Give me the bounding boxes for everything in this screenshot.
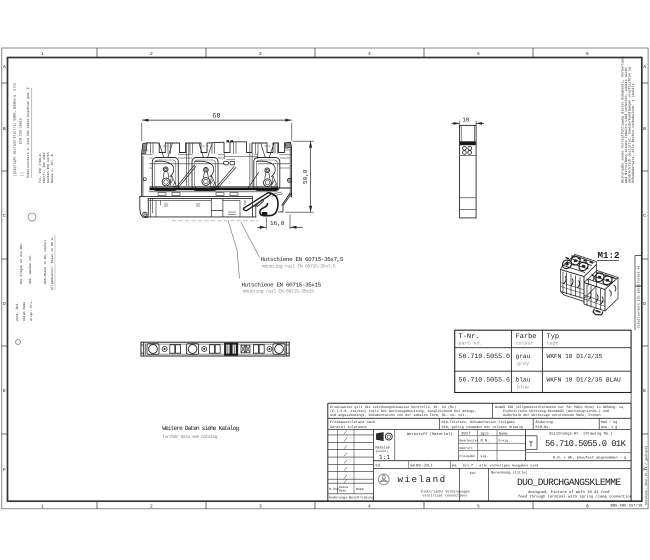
- svg-text:Datum: Datum: [339, 486, 348, 489]
- svg-text:grau: grau: [516, 353, 531, 360]
- svg-text:2017: 2017: [461, 431, 471, 436]
- svg-text:Hutschiene EN 60715-35x15: Hutschiene EN 60715-35x15: [242, 282, 322, 289]
- svg-text:Bei Fragen an die Abt.: Bei Fragen an die Abt.: [19, 242, 23, 284]
- svg-text:ea: ea: [452, 464, 457, 469]
- svg-text:Weitere Daten siehe Katalog: Weitere Daten siehe Katalog: [162, 425, 239, 432]
- svg-text:F: F: [3, 467, 6, 473]
- svg-text:56.710.5055.6: 56.710.5055.6: [459, 377, 510, 384]
- svg-text:T: T: [529, 441, 534, 449]
- svg-text:3: 3: [259, 504, 262, 510]
- svg-text:ECR-No.: ECR-No.: [536, 425, 551, 430]
- svg-text:Benennung (title): Benennung (title): [491, 470, 528, 475]
- svg-text:2: 2: [150, 504, 153, 510]
- svg-text:B05-X05-157/18: B05-X05-157/18: [611, 504, 644, 509]
- svg-text:DIN-Toleranz, Dokumentation Fr: DIN-Toleranz, Dokumentation Freigabe: [442, 420, 515, 425]
- svg-text:1: 1: [41, 51, 44, 57]
- svg-text:type: type: [547, 340, 559, 346]
- svg-text:N.N.: N.N.: [481, 438, 490, 443]
- svg-text:feed through terminal with spr: feed through terminal with spring clamp …: [518, 495, 632, 500]
- svg-text:10: 10: [462, 116, 470, 123]
- svg-text:Ausdruck: 2017-07-11 / gedruck: Ausdruck: 2017-07-11 / gedruckt: [644, 446, 648, 505]
- svg-text:16,8: 16,8: [270, 220, 285, 227]
- svg-text:Freimasstoleranz nach: Freimasstoleranz nach: [330, 420, 375, 425]
- svg-text:colour: colour: [516, 340, 534, 346]
- svg-text:Geprüft: Geprüft: [460, 446, 473, 450]
- svg-text:Ed.: Ed.: [376, 464, 383, 469]
- svg-text:blau: blau: [516, 377, 531, 384]
- svg-text:4: 4: [368, 504, 371, 510]
- svg-text:1: 1: [41, 504, 44, 510]
- svg-text:6: 6: [586, 51, 589, 57]
- svg-text:5: 5: [477, 504, 480, 510]
- svg-text:A: A: [3, 64, 6, 70]
- svg-text:grey: grey: [517, 361, 529, 367]
- svg-text:mounting rail EN 60715-35x15: mounting rail EN 60715-35x15: [243, 289, 314, 295]
- svg-text:Hutschiene EN 60715-35x7,5: Hutschiene EN 60715-35x7,5: [261, 256, 344, 263]
- svg-text:WKFN 10 D1/2/35: WKFN 10 D1/2/35: [547, 353, 603, 360]
- svg-text:C: C: [3, 213, 6, 219]
- svg-text:WKFN 10 D1/2/35 BLAU: WKFN 10 D1/2/35 BLAU: [547, 377, 622, 384]
- svg-text:und angussbedingt. Dokumentati: und angussbedingt. Dokumentation von der…: [330, 413, 466, 418]
- svg-text:4: 4: [368, 51, 371, 57]
- svg-text:DUO_DURCHGANGSKLEMME: DUO_DURCHGANGSKLEMME: [517, 477, 621, 488]
- svg-text:Urspr. Ers.: Urspr. Ers.: [29, 300, 33, 321]
- svg-text:further data see catalog: further data see catalog: [162, 434, 217, 440]
- svg-text:56.710.5055.0 01K: 56.710.5055.0 01K: [545, 439, 627, 449]
- svg-text:50,8: 50,8: [302, 169, 309, 184]
- svg-text:56.710.5055.0: 56.710.5055.0: [459, 353, 510, 360]
- svg-text:part-no.: part-no.: [459, 340, 483, 346]
- svg-text:1:1: 1:1: [379, 454, 390, 461]
- svg-text:Allgemeintol. Masse in mm W.: Allgemeintol. Masse in mm W.: [50, 236, 54, 290]
- svg-text:Schadenersatz. Alle Rechte vor: Schadenersatz. Alle Rechte vorbehalten. …: [631, 83, 636, 183]
- svg-text:Änderung: Änderung: [536, 420, 553, 425]
- svg-text:am: am: [410, 464, 415, 469]
- svg-text:Zeichnungs-Nr. (Drawing No.): Zeichnungs-Nr. (Drawing No.): [549, 432, 613, 437]
- svg-text:09.JULI: 09.JULI: [416, 464, 433, 469]
- svg-text:Freig.: Freig.: [499, 438, 511, 442]
- svg-text:Freigabe: Freigabe: [460, 454, 475, 458]
- svg-text:B: B: [643, 126, 646, 132]
- svg-text:General tolerance: General tolerance: [330, 425, 367, 430]
- svg-text:electrical connections: electrical connections: [423, 493, 468, 498]
- svg-text:D: D: [643, 301, 646, 307]
- svg-text:JgLb: JgLb: [480, 431, 489, 436]
- svg-text:mounting rail EN 60715-35x7,5: mounting rail EN 60715-35x7,5: [262, 264, 336, 270]
- svg-text:Änderungs-Beschreibung: Änderungs-Beschreibung: [329, 496, 374, 501]
- svg-text:Außerhalb der Werkzeuge entste: Außerhalb der Werkzeuge entstehende Maße…: [503, 413, 601, 418]
- svg-text:Maß ~ kg: Maß ~ kg: [601, 420, 617, 425]
- svg-text:sig.: sig.: [481, 454, 489, 458]
- svg-text:Bearbeitet: Bearbeitet: [460, 438, 479, 442]
- svg-text:tpc: tpc: [470, 471, 476, 476]
- svg-text:C: C: [643, 213, 646, 219]
- svg-text:Format A4: Format A4: [637, 266, 641, 283]
- svg-text:Gew. ± g: Gew. ± g: [601, 425, 617, 430]
- svg-text:Masse o. Tol. Ø: Masse o. Tol. Ø: [50, 154, 54, 183]
- svg-text:DIN, gültig zusammen mit relea: DIN, gültig zusammen mit release drawing: [442, 425, 523, 430]
- svg-text:E: E: [643, 388, 646, 394]
- svg-text:Werkstoff (Material): Werkstoff (Material): [407, 432, 453, 437]
- svg-text:Copyright Wieland Electric Gmb: Copyright Wieland Electric GmbH, Bamberg…: [13, 83, 17, 174]
- svg-text:Name: Name: [356, 487, 364, 491]
- svg-text:Datum Name: Datum Name: [22, 302, 26, 321]
- svg-text:Schutzvermerk ISO 16016: Schutzvermerk ISO 16016: [637, 284, 641, 328]
- svg-text:Ers.f.: alle vorherigen Ausgab: Ers.f.: alle vorherigen Ausgaben sind: [463, 463, 538, 468]
- svg-text:wieland: wieland: [398, 474, 447, 485]
- svg-text:Name: Name: [499, 431, 508, 436]
- svg-text:blue: blue: [517, 384, 529, 390]
- svg-text:DIN ISO 16016: DIN ISO 16016: [19, 118, 23, 144]
- svg-text:6: 6: [586, 504, 589, 510]
- svg-text:(scale): (scale): [376, 449, 389, 453]
- svg-text:D: D: [3, 301, 6, 307]
- svg-text:5: 5: [477, 51, 480, 57]
- svg-text:3: 3: [259, 51, 262, 57]
- svg-text:Schutzvermerk n. DIN ISO 16016: Schutzvermerk n. DIN ISO 16016 beachten …: [26, 87, 30, 178]
- svg-text:B: B: [3, 126, 6, 132]
- svg-text:2: 2: [150, 51, 153, 57]
- svg-text:Abt. wenden zul.: Abt. wenden zul.: [28, 253, 32, 284]
- svg-text:N.N. + WE, pneufest abgenommen: N.N. + WE, pneufest abgenommen ~ g: [553, 455, 626, 460]
- svg-text:M1:2: M1:2: [598, 250, 620, 261]
- svg-text:GEO-Masse in mm, Winkel: GEO-Masse in mm, Winkel: [43, 240, 47, 284]
- svg-text:date: date: [339, 488, 346, 492]
- svg-text:A: A: [643, 64, 646, 70]
- svg-text:68: 68: [212, 112, 220, 120]
- svg-text:designed, Picture of wkfn 10: designed, Picture of wkfn 10 d1 Conf: [528, 490, 611, 495]
- svg-text:Zust. Änd.: Zust. Änd.: [15, 302, 19, 321]
- svg-text:E: E: [3, 388, 6, 394]
